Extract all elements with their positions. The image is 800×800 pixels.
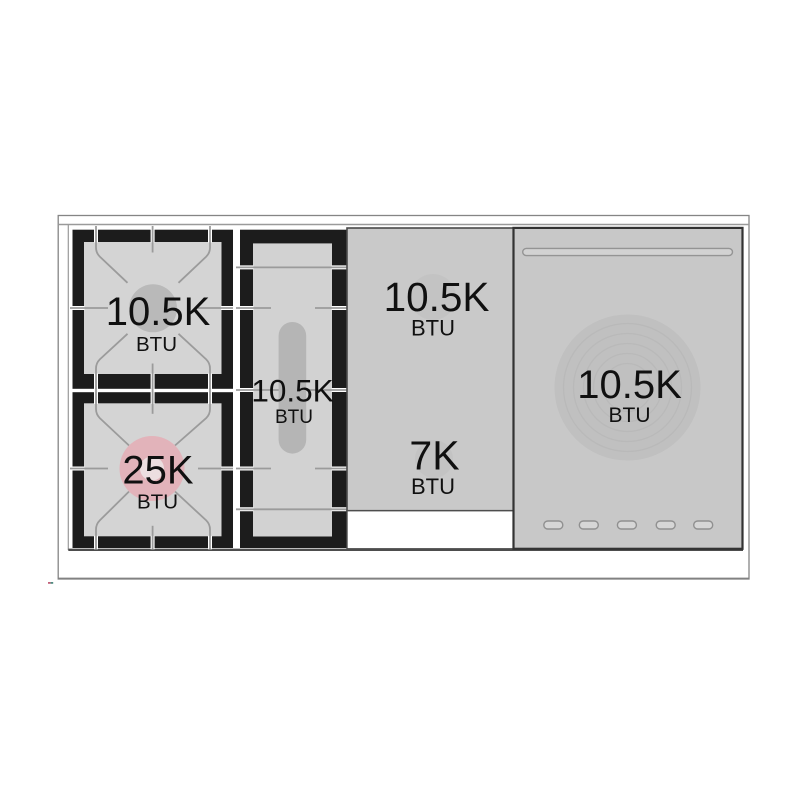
- svg-text:BTU: BTU: [275, 407, 313, 428]
- svg-text:BTU: BTU: [609, 404, 651, 427]
- svg-text:25K: 25K: [122, 449, 193, 493]
- svg-text:BTU: BTU: [411, 316, 455, 341]
- svg-text:10.5K: 10.5K: [384, 274, 490, 320]
- svg-text:BTU: BTU: [411, 474, 455, 499]
- svg-text:10.5K: 10.5K: [251, 373, 333, 409]
- svg-text:BTU: BTU: [136, 333, 177, 356]
- svg-text:10.5K: 10.5K: [106, 290, 211, 334]
- svg-text:7K: 7K: [409, 433, 459, 479]
- svg-text:10.5K: 10.5K: [577, 363, 682, 407]
- svg-text:BTU: BTU: [137, 491, 178, 514]
